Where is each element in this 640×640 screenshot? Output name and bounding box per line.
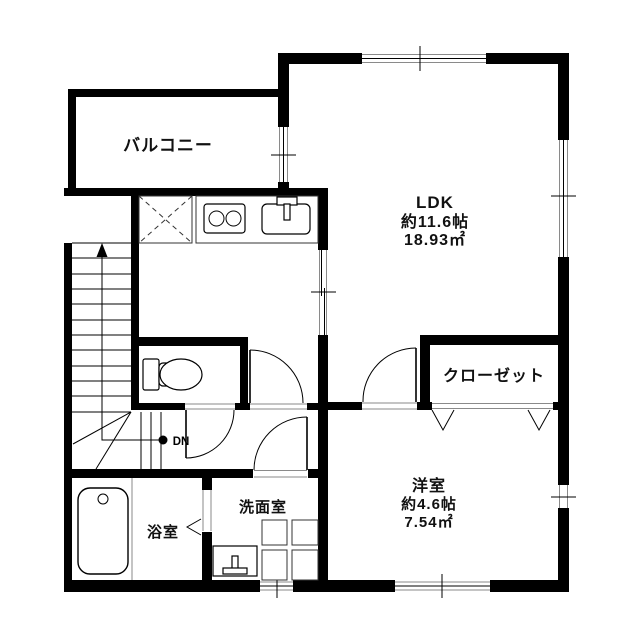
western-room-size: 約4.6帖 <box>401 495 457 513</box>
vanity-sink-icon <box>213 546 257 576</box>
bath-wash-divider-upper <box>202 478 212 490</box>
ldk-area: 18.93㎡ <box>404 230 466 249</box>
balcony-wall-left <box>68 89 76 196</box>
kitchen-hall-door <box>250 350 307 409</box>
closet-label: クローゼット <box>443 366 545 385</box>
wall-bottom-middle <box>293 580 395 592</box>
ldk-label-group: LDK 約11.6帖 18.93㎡ <box>401 193 469 249</box>
washroom-label: 洗面室 <box>239 498 287 516</box>
floor-plan: バルコニー LDK 約11.6帖 18.93㎡ クローゼット 洋室 約4.6帖 … <box>0 0 640 640</box>
walls <box>64 53 569 592</box>
wall-right-lower <box>558 508 569 592</box>
stairs-east-wall <box>131 188 139 410</box>
western-room-wall-top-c <box>553 402 569 410</box>
western-room-door <box>362 348 417 409</box>
closet-wall-top <box>420 335 569 345</box>
window-western-bottom <box>395 574 490 598</box>
toilet-wall-bottom-a <box>131 403 185 410</box>
ldk-west-wall-upper <box>278 53 289 127</box>
ldk-label: LDK <box>416 193 454 212</box>
dn-label: DN <box>173 436 190 448</box>
wall-top-right-segment <box>486 53 569 64</box>
ldk-size: 約11.6帖 <box>401 212 469 231</box>
bathroom-fixtures <box>78 478 318 580</box>
wall-bottom-right <box>490 580 569 592</box>
ldk-west-wall-stub <box>278 182 289 196</box>
wall-right-middle <box>558 257 569 485</box>
western-room-wall-top-a <box>328 402 362 410</box>
dn-marker-dot <box>159 436 168 445</box>
bath-wash-divider-lower <box>202 532 212 580</box>
toilet-wall-bottom-c <box>307 403 318 410</box>
western-room-area: 7.54㎡ <box>404 513 453 531</box>
wall-left <box>64 243 72 592</box>
closet-wall-left <box>420 335 430 410</box>
window-western-right <box>551 485 576 508</box>
wall-bottom-left <box>64 580 260 592</box>
washroom-door <box>254 417 307 477</box>
hallway-south-wall-right <box>308 469 328 478</box>
window-ldk-top <box>362 46 486 71</box>
closet-bifold-doors <box>432 404 553 431</box>
bathroom-label: 浴室 <box>147 523 179 541</box>
kitchen-fixtures <box>139 196 318 243</box>
wall-right-upper <box>558 53 569 140</box>
bathroom-folding-door <box>187 490 211 535</box>
bathtub-icon <box>78 488 128 574</box>
floor-plan-drawing: バルコニー LDK 約11.6帖 18.93㎡ クローゼット 洋室 約4.6帖 … <box>0 0 640 640</box>
toilet-wall-right <box>240 337 248 410</box>
western-room-label-group: 洋室 約4.6帖 7.54㎡ <box>401 476 457 531</box>
hallway-south-wall-left <box>64 469 253 478</box>
toilet-wall-top <box>131 337 248 346</box>
balcony-label: バルコニー <box>123 136 213 155</box>
wall-top-left-segment <box>280 53 362 64</box>
kitchen-ldk-wall-upper <box>318 188 328 250</box>
window-ldk-right <box>551 140 576 257</box>
stairs <box>72 243 168 469</box>
stove-icon <box>204 204 245 233</box>
western-room-label: 洋室 <box>412 476 446 495</box>
stair-treads <box>72 243 161 469</box>
balcony-sliding-door <box>271 127 296 182</box>
toilet-door <box>185 404 235 458</box>
refrigerator-space-icon <box>139 196 192 243</box>
kitchen-ldk-wall-lower <box>318 335 328 592</box>
balcony-wall-top <box>68 89 288 97</box>
kitchen-ldk-sliding-window <box>311 250 336 335</box>
toilet-wall-bottom-b <box>235 403 250 410</box>
toilet-fixture-icon <box>143 359 202 390</box>
washer-pan-icon <box>262 520 318 580</box>
arrow-head-icon <box>97 243 108 257</box>
